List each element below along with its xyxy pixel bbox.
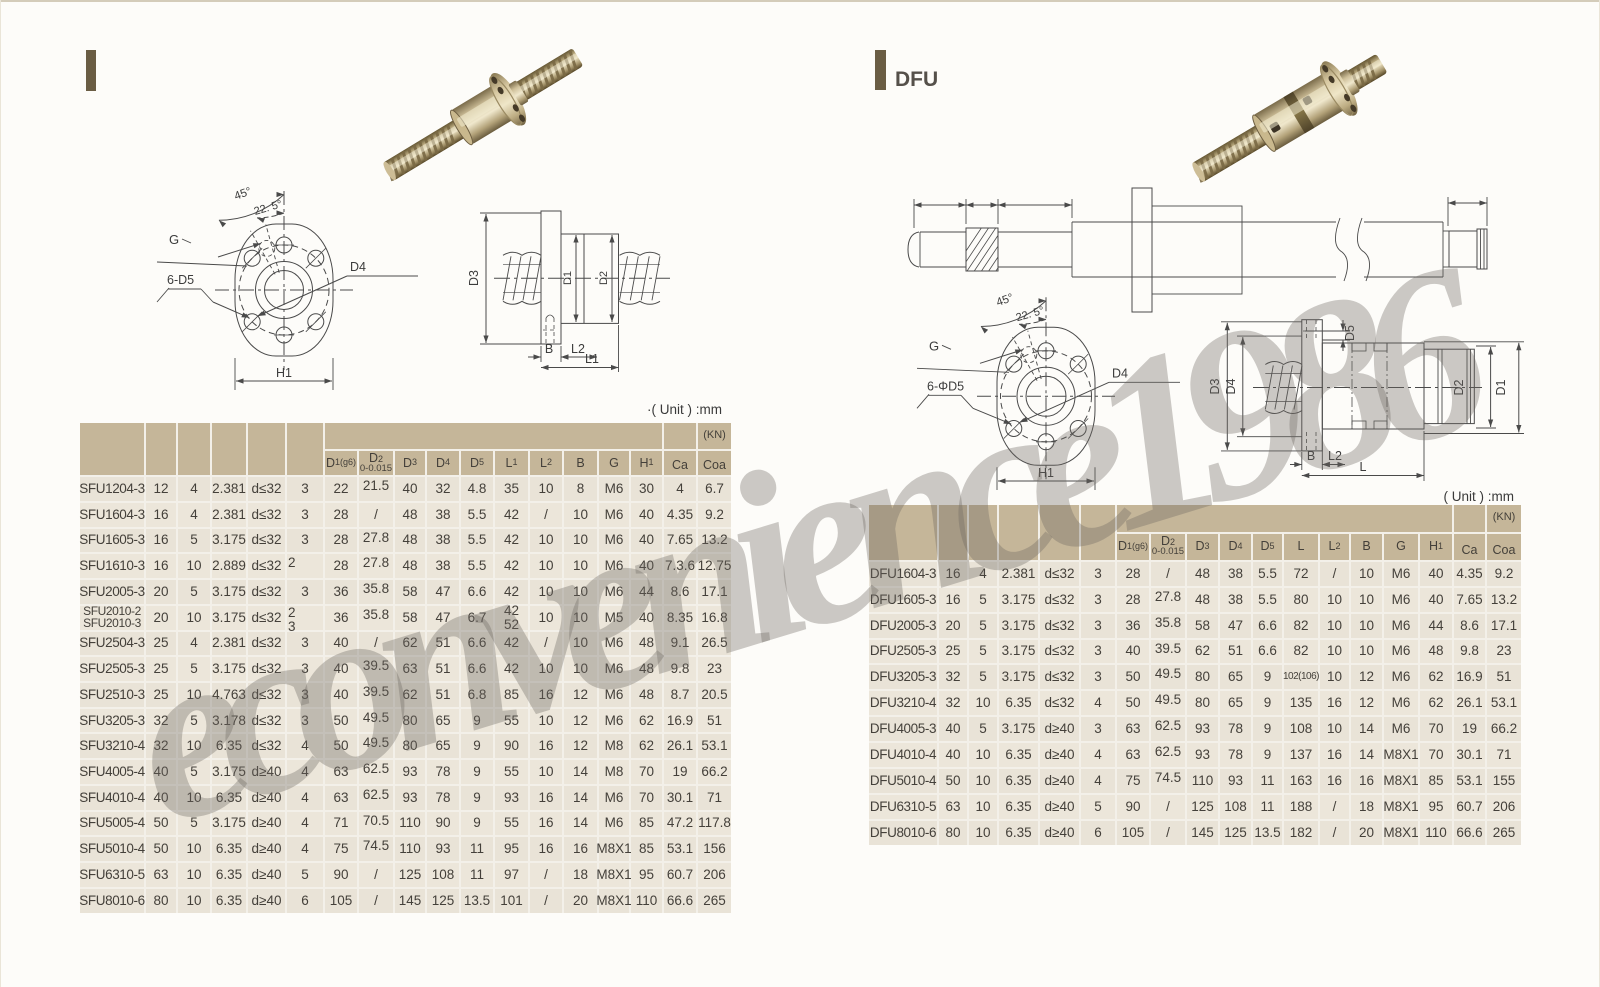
- svg-text:22. 5°: 22. 5°: [253, 198, 284, 217]
- svg-text:G: G: [929, 338, 939, 353]
- svg-text:H1: H1: [276, 366, 292, 380]
- svg-text:6-D5: 6-D5: [167, 273, 194, 287]
- svg-text:D1: D1: [562, 271, 574, 285]
- svg-text:22. 5°: 22. 5°: [1015, 305, 1046, 324]
- svg-text:D3: D3: [1208, 378, 1222, 394]
- svg-text:D4: D4: [1224, 378, 1238, 394]
- svg-text:B: B: [545, 342, 553, 356]
- svg-text:L: L: [1360, 460, 1367, 474]
- svg-text:L2: L2: [1328, 449, 1342, 463]
- svg-text:45°: 45°: [995, 292, 1015, 309]
- svg-text:D3: D3: [467, 270, 481, 286]
- svg-text:G: G: [169, 232, 179, 247]
- svg-text:H1: H1: [1038, 466, 1054, 480]
- svg-text:D2: D2: [1452, 379, 1466, 395]
- svg-text:D2: D2: [598, 271, 610, 285]
- svg-text:D4: D4: [350, 260, 366, 274]
- svg-text:45°: 45°: [233, 186, 253, 203]
- svg-text:L2: L2: [571, 342, 585, 356]
- svg-text:D5: D5: [1343, 325, 1357, 341]
- svg-text:L1: L1: [585, 352, 599, 366]
- svg-text:6-ΦD5: 6-ΦD5: [927, 379, 964, 393]
- svg-text:B: B: [1307, 449, 1315, 463]
- svg-text:D4: D4: [1112, 366, 1128, 380]
- svg-text:D1: D1: [1494, 379, 1508, 395]
